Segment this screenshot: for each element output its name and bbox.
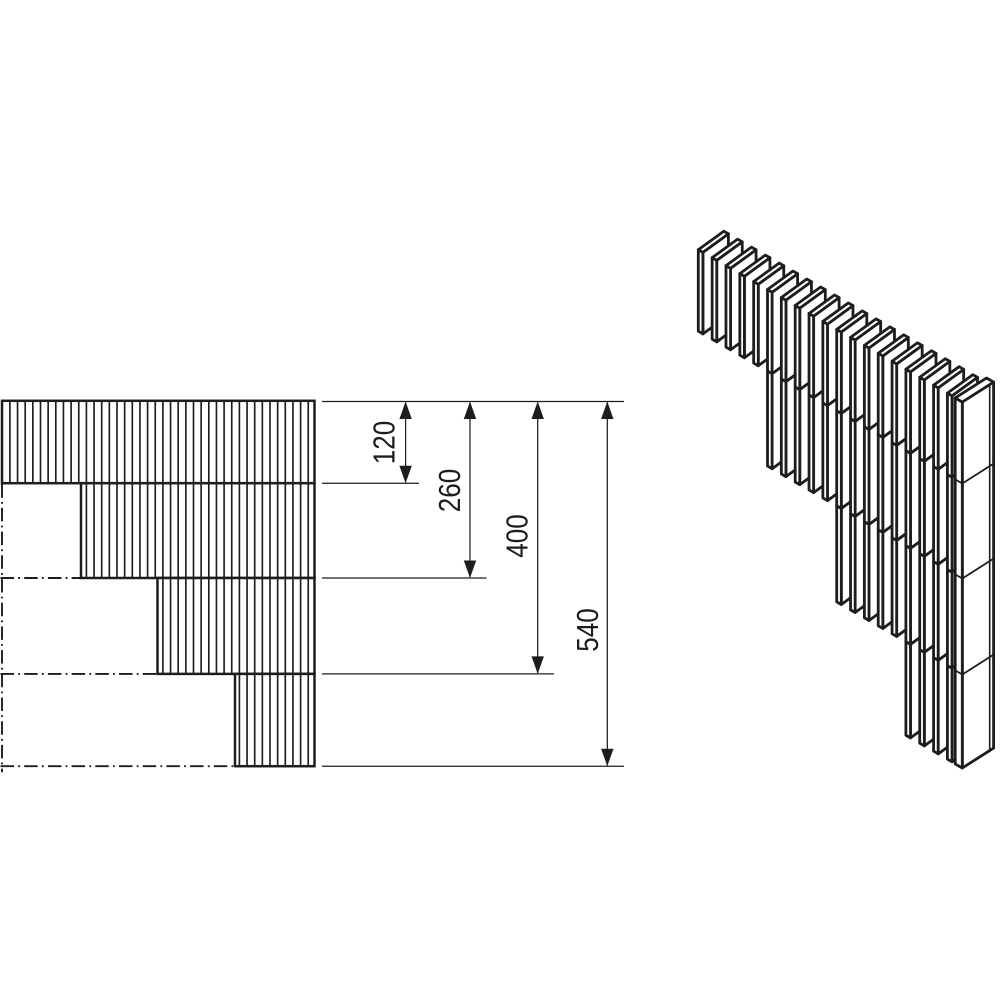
svg-text:540: 540 [571, 608, 605, 652]
svg-text:120: 120 [368, 421, 402, 465]
svg-text:400: 400 [501, 514, 535, 558]
svg-text:260: 260 [433, 469, 467, 513]
